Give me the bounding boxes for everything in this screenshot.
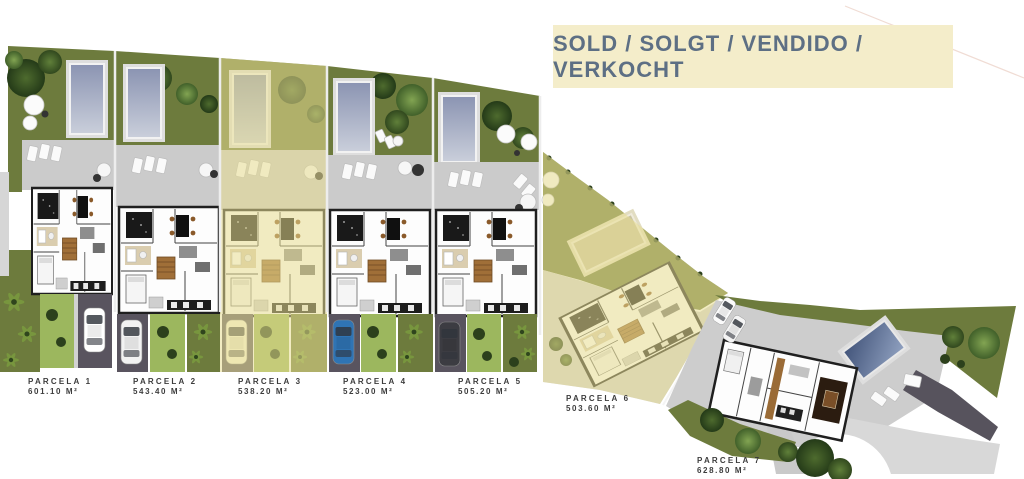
lawn	[361, 314, 396, 372]
lawn-olive	[398, 314, 433, 372]
round-chair-icon	[398, 161, 412, 175]
parcel-7-label: PARCELA 7 628.80 M²	[697, 456, 761, 475]
bush-icon	[167, 349, 177, 359]
parcel-name: PARCELA 5	[458, 377, 522, 387]
lawn-olive	[187, 314, 220, 372]
tree-icon	[38, 50, 62, 74]
parcel-name: PARCELA 6	[566, 394, 630, 404]
parcel-area: 523.00 M²	[343, 387, 407, 397]
villa	[119, 207, 219, 313]
parcel-area: 601.10 M²	[28, 387, 92, 397]
parcel-2-label: PARCELA 2 543.40 M²	[133, 377, 197, 396]
tree-icon	[778, 442, 798, 462]
lawn	[467, 314, 501, 372]
tree-icon	[5, 51, 23, 69]
round-chair-icon	[93, 174, 101, 182]
tree-icon	[700, 408, 724, 432]
parcel-2[interactable]	[115, 51, 220, 372]
parcel-area: 543.40 M²	[133, 387, 197, 397]
parcel-3-label: PARCELA 3 538.20 M²	[238, 377, 302, 396]
parked-car	[333, 320, 354, 364]
parcel-area: 628.80 M²	[697, 466, 761, 476]
bush-icon	[473, 328, 485, 340]
swimming-pool	[337, 82, 371, 152]
lawn	[150, 314, 185, 372]
lawn-olive	[503, 314, 537, 372]
tree-icon	[200, 95, 218, 113]
bush-icon	[377, 349, 387, 359]
table-icon	[42, 111, 49, 118]
villa	[436, 210, 536, 316]
parked-car	[439, 322, 460, 366]
tree-icon	[176, 83, 198, 105]
villa	[32, 188, 112, 294]
tree-icon	[385, 110, 409, 134]
round-chair-icon	[210, 170, 218, 178]
garden-strip	[8, 142, 22, 192]
umbrella-icon	[521, 134, 537, 150]
side-path	[0, 172, 9, 276]
table-icon	[514, 150, 520, 156]
villa	[330, 210, 430, 316]
parcel-area: 505.20 M²	[458, 387, 522, 397]
parked-car	[84, 308, 105, 352]
umbrella-icon	[24, 95, 44, 115]
swimming-pool	[442, 96, 476, 162]
bush-icon	[56, 337, 66, 347]
bush-icon	[46, 309, 58, 321]
site-plan: SOLD / SOLGT / VENDIDO / VERKOCHT PARCEL…	[0, 0, 1024, 479]
umbrella-icon	[23, 116, 37, 130]
parcel-5[interactable]	[433, 78, 540, 372]
parcel-4-label: PARCELA 4 523.00 M²	[343, 377, 407, 396]
parcel-6-label: PARCELA 6 503.60 M²	[566, 394, 630, 413]
walkway	[74, 294, 78, 368]
bush-icon	[509, 357, 519, 367]
tree-icon	[735, 428, 761, 454]
sold-banner: SOLD / SOLGT / VENDIDO / VERKOCHT	[553, 25, 953, 88]
swimming-pool	[70, 64, 104, 134]
sold-overlay	[220, 58, 327, 372]
parcel-name: PARCELA 3	[238, 377, 302, 387]
parcel-4[interactable]	[327, 66, 433, 372]
bush-icon	[940, 354, 950, 364]
bush-icon	[482, 351, 492, 361]
tree-icon	[942, 326, 964, 348]
bush-icon	[957, 360, 965, 368]
swimming-pool	[127, 68, 161, 138]
umbrella-icon	[497, 125, 515, 143]
bush-icon	[367, 326, 379, 338]
round-chair-icon	[412, 164, 424, 176]
parked-car	[121, 320, 142, 364]
parcel-3[interactable]	[220, 58, 327, 372]
parcel-name: PARCELA 2	[133, 377, 197, 387]
parcel-name: PARCELA 4	[343, 377, 407, 387]
parcel-name: PARCELA 7	[697, 456, 761, 466]
terrace	[327, 155, 433, 210]
tree-icon	[968, 327, 1000, 359]
parcel-area: 503.60 M²	[566, 404, 630, 414]
umbrella-icon	[393, 136, 403, 146]
bush-icon	[157, 326, 169, 338]
parcel-1-label: PARCELA 1 601.10 M²	[28, 377, 92, 396]
parcel-name: PARCELA 1	[28, 377, 92, 387]
lawn	[40, 294, 74, 368]
parcel-5-label: PARCELA 5 505.20 M²	[458, 377, 522, 396]
parcel-area: 538.20 M²	[238, 387, 302, 397]
